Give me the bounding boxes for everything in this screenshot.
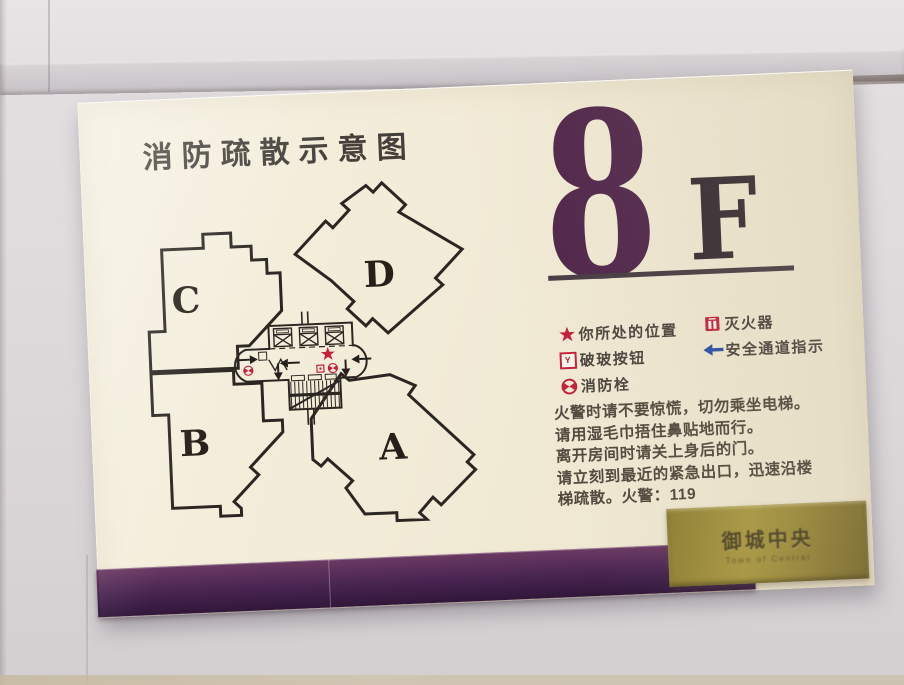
fire-extinguisher-icon — [700, 315, 725, 332]
escape-route-arrow-icon — [701, 342, 726, 357]
legend-column-1: 你所处的位置 Y 破玻按钮 消防栓 — [554, 316, 680, 399]
unit-b-label: B — [179, 422, 211, 465]
break-glass-marker — [317, 365, 324, 372]
corridor-door-box — [259, 352, 267, 360]
legend-label: 安全通道指示 — [725, 335, 825, 360]
band-seam — [328, 559, 331, 607]
fire-instructions: 火警时请不要惊慌，切勿乘坐电梯。 请用湿毛巾捂住鼻贴地而行。 离开房间时请关上身… — [554, 390, 888, 512]
hydrant-marker — [328, 363, 338, 372]
legend-column-2: 灭火器 安全通道指示 — [700, 306, 825, 363]
floor-plan: C B D A — [120, 171, 535, 546]
sign-title: 消防疏散示意图 — [142, 121, 417, 177]
floor-suffix: F — [686, 163, 761, 278]
legend-label: 消防栓 — [580, 373, 630, 396]
break-glass-icon: Y — [555, 351, 580, 369]
stair-door — [291, 375, 304, 381]
wall-tile-joint — [86, 555, 88, 685]
you-are-here-star — [321, 347, 336, 361]
stair-door — [325, 374, 336, 379]
hydrant-marker — [244, 366, 254, 375]
building-name-plaque: 御城中央 Town of Central — [666, 500, 869, 586]
stairwell — [289, 380, 342, 410]
building-name-subtitle: Town of Central — [726, 553, 812, 566]
building-name: 御城中央 — [721, 522, 814, 555]
elevator-bank — [273, 326, 343, 347]
fire-hydrant-icon — [557, 377, 582, 395]
photo-edge-shadow — [0, 0, 7, 685]
legend-item-hydrant: 消防栓 — [556, 368, 680, 399]
sign-bottom-band — [96, 541, 755, 617]
legend-label: 破玻按钮 — [579, 346, 646, 370]
unit-a-label: A — [377, 425, 409, 468]
unit-c-outline — [145, 231, 284, 372]
legend-label: 你所处的位置 — [578, 319, 678, 344]
evacuation-sign: 消防疏散示意图 8 F — [77, 70, 874, 619]
stair-door — [308, 375, 321, 381]
legend-label: 灭火器 — [724, 311, 774, 334]
wall-tile-joint — [48, 0, 50, 92]
wall-photo: 消防疏散示意图 8 F — [0, 0, 904, 685]
legend-item-route: 安全通道指示 — [701, 332, 825, 363]
location-star-icon — [554, 325, 579, 343]
unit-c-label: C — [171, 279, 201, 322]
unit-b-outline — [151, 368, 286, 519]
unit-d-label: D — [363, 253, 396, 296]
corridor-outline — [233, 322, 368, 412]
floor-skirting — [0, 675, 904, 685]
